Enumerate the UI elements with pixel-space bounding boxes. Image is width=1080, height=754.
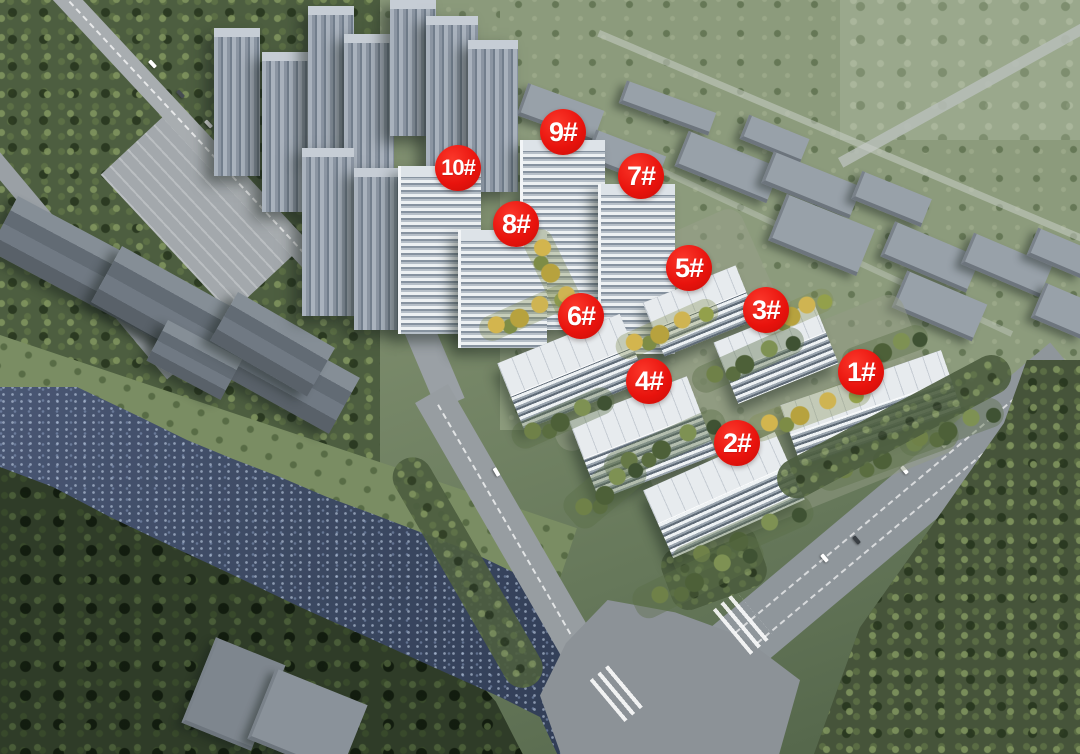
- pale-meadow: [840, 0, 1080, 140]
- highrise-tower: [302, 148, 354, 316]
- highrise-tower: [214, 28, 260, 176]
- aerial-site-plan: 1#2#3#4#5#6#7#8#9#10#: [0, 0, 1080, 754]
